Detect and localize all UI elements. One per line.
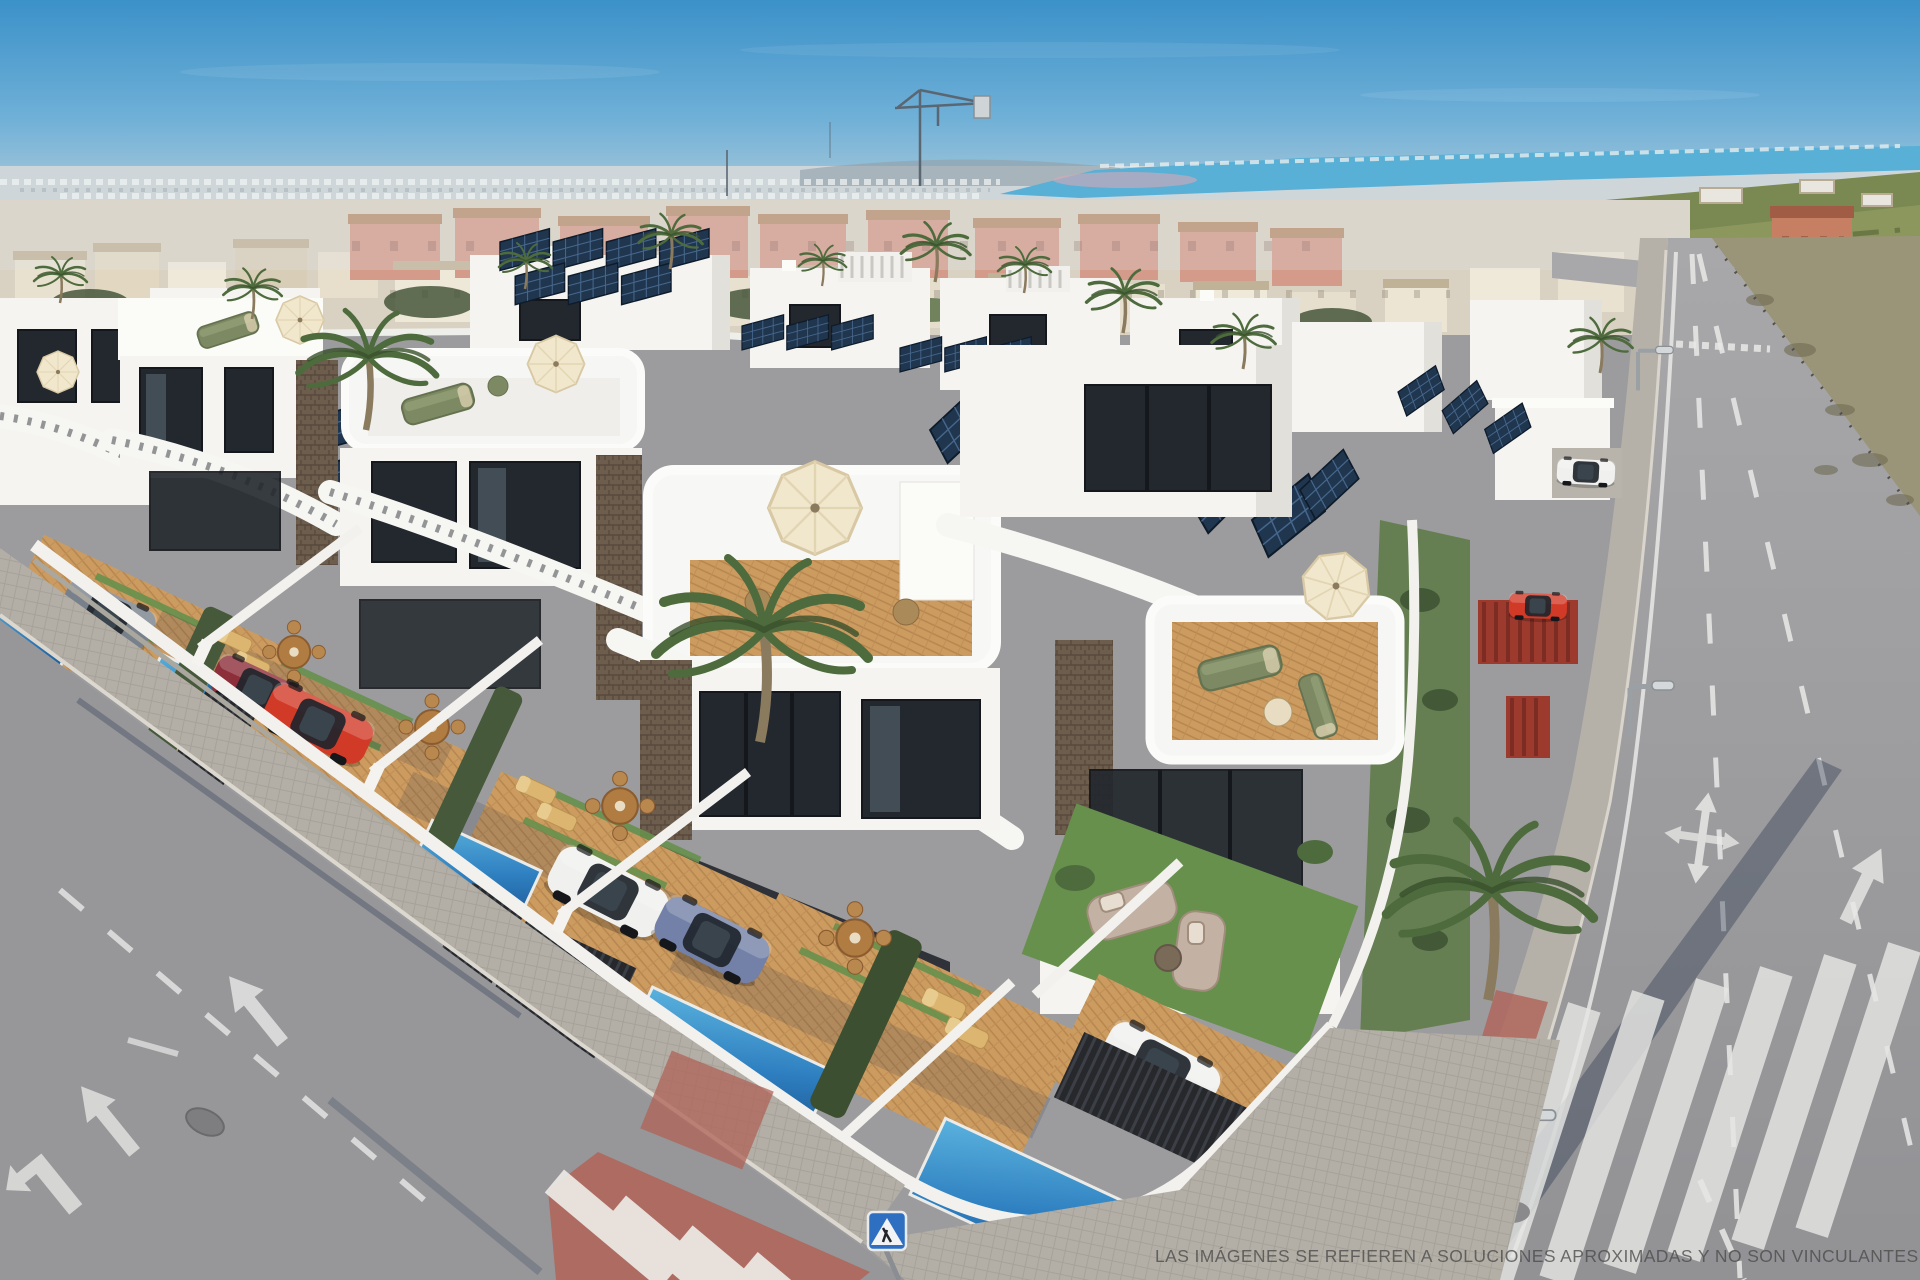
roof-armchair bbox=[488, 376, 508, 396]
bush bbox=[1297, 840, 1333, 864]
wicker-chair bbox=[893, 599, 919, 625]
aerial-development-render: LAS IMÁGENES SE REFIEREN A SOLUCIONES AP… bbox=[0, 0, 1920, 1280]
aerial-render-stage: LAS IMÁGENES SE REFIEREN A SOLUCIONES AP… bbox=[0, 0, 1920, 1280]
parasol-large bbox=[769, 462, 862, 555]
lagoon-pink-tint bbox=[1053, 172, 1197, 188]
parasol bbox=[37, 351, 79, 393]
car-red-parked bbox=[1508, 590, 1567, 623]
stone-pier bbox=[596, 455, 642, 700]
disclaimer-text: LAS IMÁGENES SE REFIEREN A SOLUCIONES AP… bbox=[1155, 1246, 1920, 1266]
wicker-table bbox=[1264, 698, 1292, 726]
parasol bbox=[528, 336, 585, 393]
car-white-city bbox=[1556, 456, 1616, 489]
villa-3 bbox=[330, 336, 650, 701]
bush bbox=[1055, 865, 1095, 891]
